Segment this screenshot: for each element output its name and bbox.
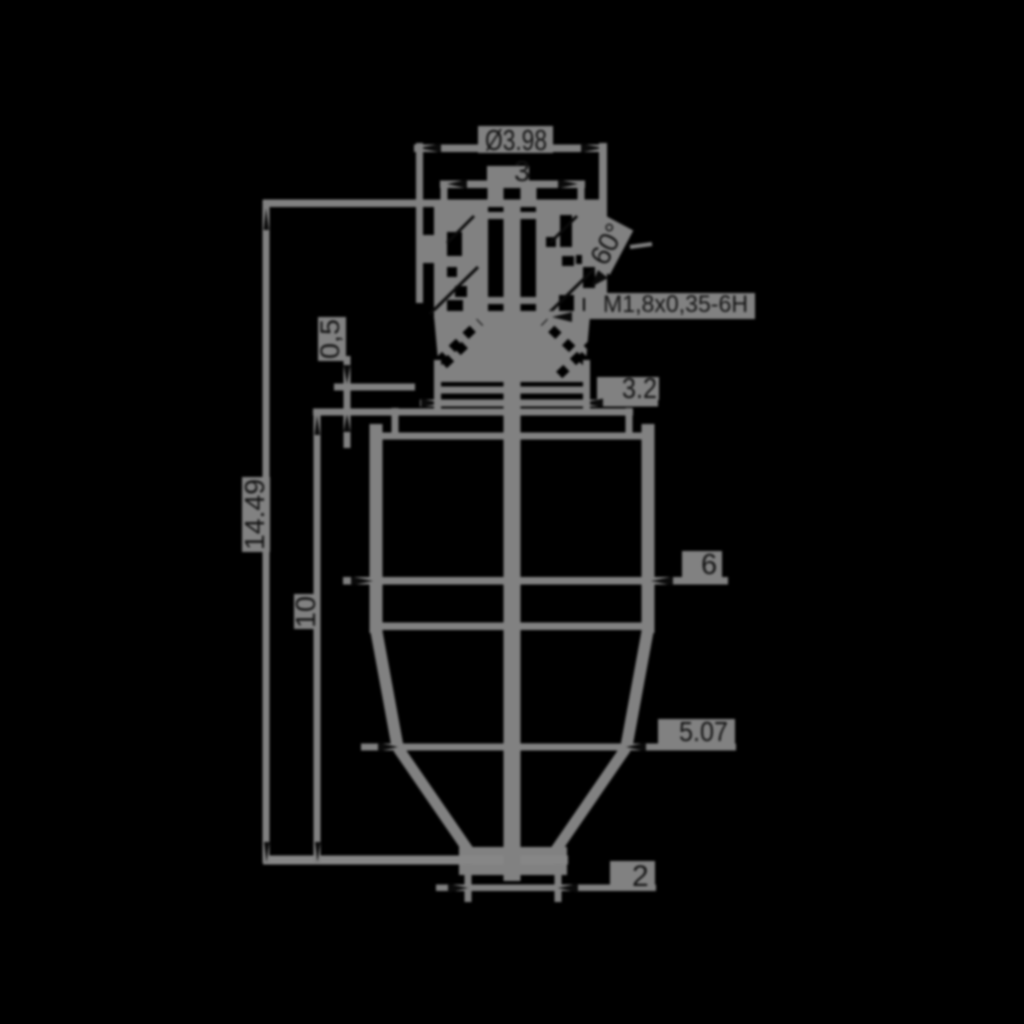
svg-text:M1,8x0,35-6H: M1,8x0,35-6H [603, 291, 748, 318]
svg-text:2: 2 [632, 860, 649, 893]
svg-text:5.07: 5.07 [679, 716, 728, 747]
svg-text:Ø3.98: Ø3.98 [485, 125, 547, 157]
svg-text:6: 6 [701, 549, 717, 581]
svg-text:14.49: 14.49 [239, 479, 270, 550]
svg-text:0,5: 0,5 [315, 319, 345, 359]
svg-text:10: 10 [290, 596, 321, 628]
svg-text:3: 3 [514, 156, 530, 188]
svg-text:3.2: 3.2 [622, 373, 657, 405]
